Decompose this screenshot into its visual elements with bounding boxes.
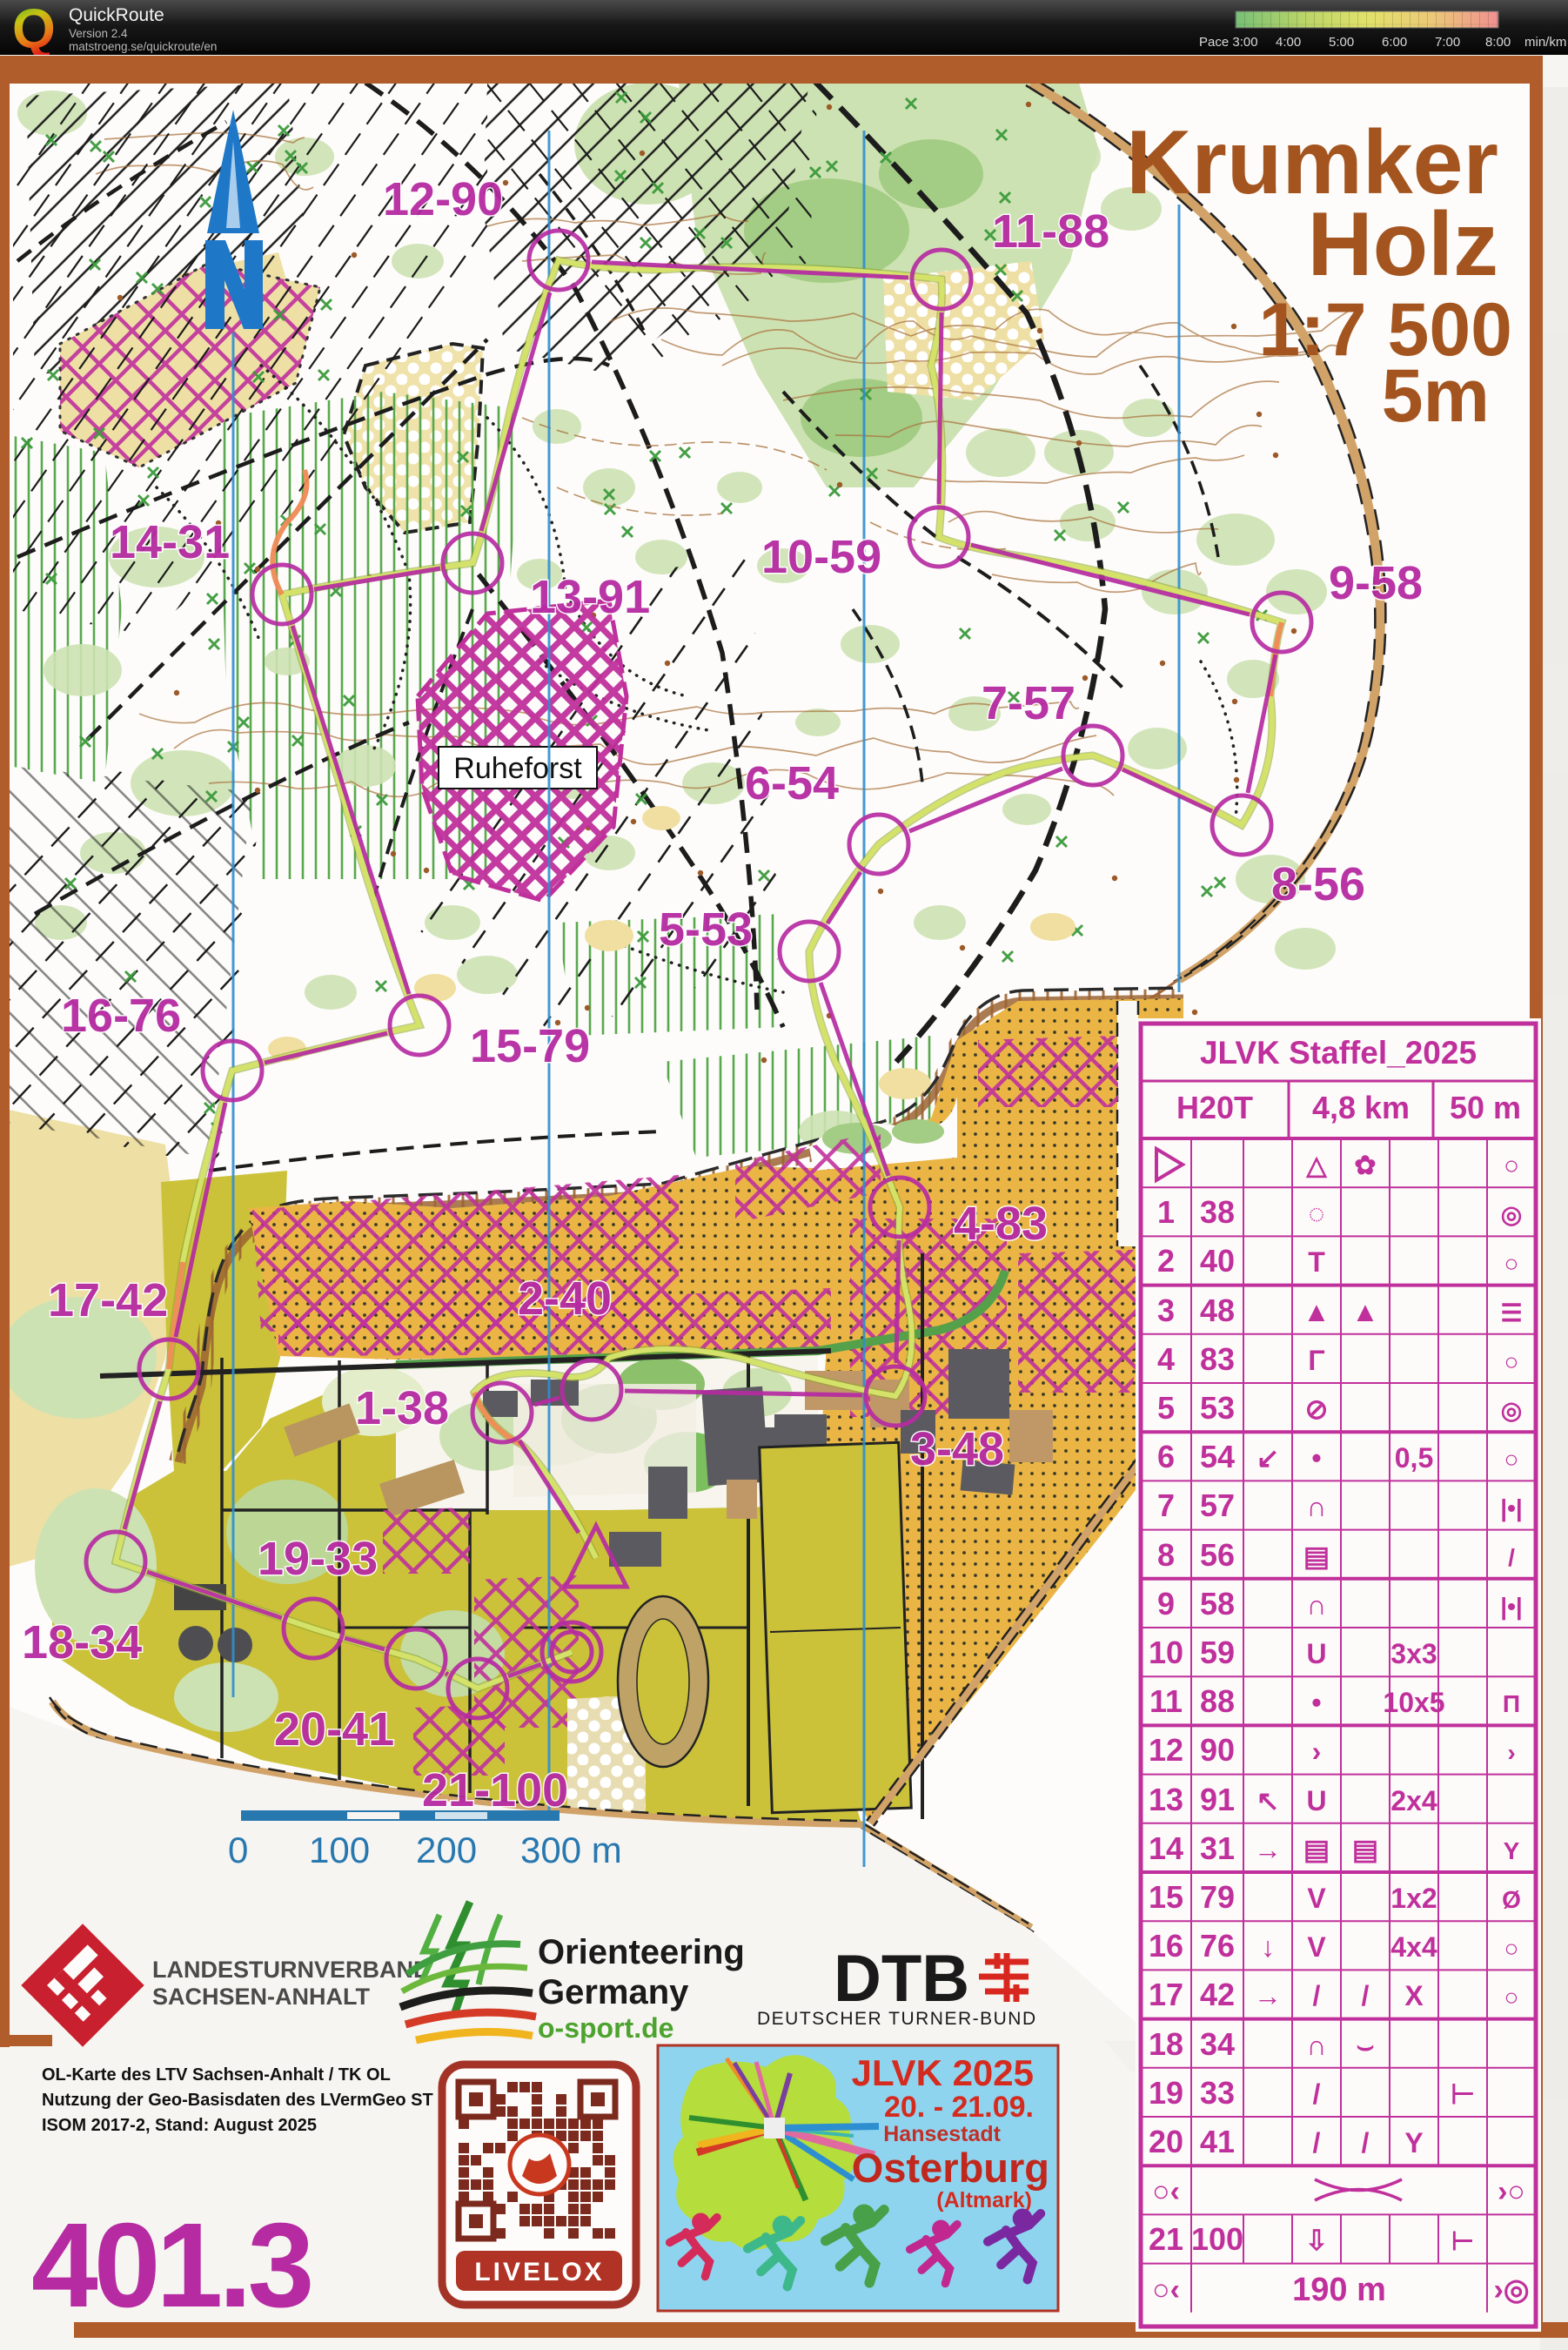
svg-text:Version 2.4: Version 2.4 xyxy=(69,27,128,40)
svg-text:↙: ↙ xyxy=(1256,1442,1280,1474)
svg-text:54: 54 xyxy=(1200,1439,1235,1474)
svg-text:41: 41 xyxy=(1200,2124,1235,2159)
svg-text:100: 100 xyxy=(1191,2221,1243,2257)
svg-text:▤: ▤ xyxy=(1352,1834,1378,1865)
svg-text:14: 14 xyxy=(1149,1830,1183,1866)
svg-text:○: ○ xyxy=(1504,1935,1519,1962)
svg-text:LIVELOX: LIVELOX xyxy=(474,2258,604,2286)
svg-text:91: 91 xyxy=(1200,1782,1235,1817)
svg-text:⊘: ⊘ xyxy=(1305,1393,1329,1425)
svg-text:Hansestadt: Hansestadt xyxy=(883,2122,1001,2146)
svg-text:Π: Π xyxy=(1503,1690,1520,1717)
svg-text:◎: ◎ xyxy=(1501,1397,1522,1424)
svg-text:ISOM 2017-2, Stand: August 202: ISOM 2017-2, Stand: August 2025 xyxy=(42,2116,317,2135)
svg-text:Q: Q xyxy=(12,0,56,60)
svg-text:17: 17 xyxy=(1149,1977,1183,2012)
svg-text:88: 88 xyxy=(1200,1683,1235,1719)
svg-text:›: › xyxy=(1312,1736,1322,1767)
svg-text:⊢: ⊢ xyxy=(1451,2078,1475,2110)
svg-text:/: / xyxy=(1362,1980,1370,2011)
svg-text:→: → xyxy=(1254,1980,1282,2011)
svg-text:○: ○ xyxy=(1504,1151,1519,1180)
svg-text:min/km: min/km xyxy=(1524,35,1566,50)
svg-text:U: U xyxy=(1306,1638,1326,1669)
svg-text:13-91: 13-91 xyxy=(530,571,650,623)
svg-text:/: / xyxy=(1313,1980,1321,2011)
svg-text:6: 6 xyxy=(1157,1439,1175,1474)
svg-text:31: 31 xyxy=(1200,1830,1235,1866)
svg-text:6-54: 6-54 xyxy=(745,757,839,809)
svg-text:1: 1 xyxy=(1157,1194,1175,1230)
svg-text:2: 2 xyxy=(1157,1243,1175,1279)
svg-text:Orienteering: Orienteering xyxy=(538,1933,745,1971)
svg-text:⌣: ⌣ xyxy=(1356,2030,1374,2061)
svg-text:○: ○ xyxy=(1504,1348,1519,1375)
svg-text:10: 10 xyxy=(1149,1635,1183,1670)
svg-text:8: 8 xyxy=(1157,1537,1175,1573)
svg-text:›○: ›○ xyxy=(1498,2175,1525,2208)
svg-text:JLVK Staffel_2025: JLVK Staffel_2025 xyxy=(1200,1035,1477,1071)
svg-text:9-58: 9-58 xyxy=(1329,557,1423,609)
svg-text:V: V xyxy=(1307,1883,1326,1914)
svg-text:4,8 km: 4,8 km xyxy=(1312,1090,1410,1125)
svg-text:12-90: 12-90 xyxy=(383,173,503,225)
svg-text:Pace 3:00: Pace 3:00 xyxy=(1199,35,1258,50)
svg-text:X: X xyxy=(1404,1980,1424,2011)
svg-text:15: 15 xyxy=(1149,1879,1183,1915)
svg-text:Γ: Γ xyxy=(1308,1345,1324,1376)
svg-text:•: • xyxy=(1311,1442,1321,1474)
svg-text:1x2: 1x2 xyxy=(1390,1883,1437,1914)
svg-text:→: → xyxy=(1254,1834,1282,1865)
svg-text:10-59: 10-59 xyxy=(761,531,881,583)
svg-text:8-56: 8-56 xyxy=(1271,858,1365,910)
svg-text:90: 90 xyxy=(1200,1732,1235,1768)
svg-text:|•|: |•| xyxy=(1500,1494,1522,1521)
svg-text:Y: Y xyxy=(1504,1837,1520,1864)
svg-text:○‹: ○‹ xyxy=(1152,2175,1180,2208)
svg-text:✿: ✿ xyxy=(1354,1151,1376,1180)
svg-text:OL-Karte des LTV Sachsen-Anhal: OL-Karte des LTV Sachsen-Anhalt / TK OL xyxy=(42,2065,391,2085)
svg-text:190 m: 190 m xyxy=(1292,2272,1386,2308)
svg-text:10x5: 10x5 xyxy=(1383,1687,1444,1718)
svg-text:18-34: 18-34 xyxy=(22,1616,142,1668)
svg-text:/: / xyxy=(1313,2127,1321,2159)
svg-text:83: 83 xyxy=(1200,1341,1235,1377)
svg-text:▤: ▤ xyxy=(1303,1834,1330,1865)
svg-text:T: T xyxy=(1308,1246,1325,1278)
svg-text:matstroeng.se/quickroute/en: matstroeng.se/quickroute/en xyxy=(69,40,217,53)
svg-text:▲: ▲ xyxy=(1303,1296,1330,1327)
svg-text:◌: ◌ xyxy=(1308,1198,1324,1229)
svg-text:57: 57 xyxy=(1200,1487,1235,1523)
svg-text:/: / xyxy=(1362,2127,1370,2159)
svg-text:○‹: ○‹ xyxy=(1152,2273,1180,2306)
svg-text:5: 5 xyxy=(1157,1390,1175,1426)
svg-text:V: V xyxy=(1307,1931,1326,1963)
svg-text:|•|: |•| xyxy=(1500,1593,1522,1620)
svg-text:SACHSEN-ANHALT: SACHSEN-ANHALT xyxy=(152,1984,370,2010)
svg-text:o-sport.de: o-sport.de xyxy=(538,2012,673,2044)
svg-text:↖: ↖ xyxy=(1256,1785,1280,1816)
svg-text:∩: ∩ xyxy=(1306,2030,1326,2061)
svg-text:4x4: 4x4 xyxy=(1390,1931,1437,1963)
svg-text:⇩: ⇩ xyxy=(1305,2225,1329,2256)
svg-text:▲: ▲ xyxy=(1351,1296,1379,1327)
svg-text:↓: ↓ xyxy=(1261,1931,1275,1963)
svg-text:Holz: Holz xyxy=(1307,194,1498,295)
svg-text:∩: ∩ xyxy=(1306,1491,1326,1522)
svg-text:76: 76 xyxy=(1200,1928,1235,1964)
svg-text:20. - 21.09.: 20. - 21.09. xyxy=(884,2091,1034,2124)
svg-text:DEUTSCHER TURNER-BUND: DEUTSCHER TURNER-BUND xyxy=(757,2009,1037,2029)
svg-text:3-48: 3-48 xyxy=(910,1423,1004,1475)
svg-text:11: 11 xyxy=(1149,1683,1183,1719)
svg-text:◎: ◎ xyxy=(1501,1201,1522,1228)
svg-text:›: › xyxy=(1507,1739,1515,1766)
svg-text:8:00: 8:00 xyxy=(1485,35,1511,50)
svg-text:13: 13 xyxy=(1149,1782,1183,1817)
svg-text:4:00: 4:00 xyxy=(1276,35,1301,50)
svg-text:4-83: 4-83 xyxy=(954,1198,1048,1250)
svg-text:401.3: 401.3 xyxy=(31,2199,311,2333)
svg-text:Germany: Germany xyxy=(538,1973,689,2011)
svg-text:56: 56 xyxy=(1200,1537,1235,1573)
svg-text:LANDESTURNVERBAND: LANDESTURNVERBAND xyxy=(152,1957,431,1983)
svg-text:16: 16 xyxy=(1149,1928,1183,1964)
svg-text:0,5: 0,5 xyxy=(1395,1442,1433,1474)
svg-text:•: • xyxy=(1311,1687,1321,1718)
svg-text:53: 53 xyxy=(1200,1390,1235,1426)
svg-text:12: 12 xyxy=(1149,1732,1183,1768)
svg-text:50 m: 50 m xyxy=(1450,1090,1521,1125)
svg-text:79: 79 xyxy=(1200,1879,1235,1915)
svg-text:20-41: 20-41 xyxy=(274,1703,394,1756)
svg-text:Ruheforst: Ruheforst xyxy=(453,752,582,785)
svg-text:7-57: 7-57 xyxy=(982,677,1075,729)
svg-text:100: 100 xyxy=(309,1830,370,1870)
svg-text:34: 34 xyxy=(1200,2026,1235,2062)
svg-text:19-33: 19-33 xyxy=(258,1533,378,1585)
svg-text:3x3: 3x3 xyxy=(1390,1638,1437,1669)
svg-text:○: ○ xyxy=(1504,1984,1519,2011)
svg-text:6:00: 6:00 xyxy=(1382,35,1407,50)
svg-text:H20T: H20T xyxy=(1176,1090,1253,1125)
svg-text:0: 0 xyxy=(228,1830,248,1870)
svg-text:21: 21 xyxy=(1149,2221,1183,2257)
svg-text:Ø: Ø xyxy=(1502,1886,1521,1913)
svg-text:(Altmark): (Altmark) xyxy=(936,2188,1032,2212)
svg-text:11-88: 11-88 xyxy=(992,205,1109,258)
svg-text:Nutzung der Geo-Basisdaten des: Nutzung der Geo-Basisdaten des LVermGeo … xyxy=(42,2091,433,2110)
svg-text:48: 48 xyxy=(1200,1292,1235,1328)
svg-text:17-42: 17-42 xyxy=(48,1274,168,1326)
svg-text:›◎: ›◎ xyxy=(1494,2273,1530,2306)
svg-text:U: U xyxy=(1306,1785,1326,1816)
svg-text:59: 59 xyxy=(1200,1635,1235,1670)
svg-text:19: 19 xyxy=(1149,2075,1183,2111)
svg-text:42: 42 xyxy=(1200,1977,1235,2012)
svg-text:5m: 5m xyxy=(1382,354,1490,438)
svg-text:3: 3 xyxy=(1157,1292,1175,1328)
svg-text:Osterburg: Osterburg xyxy=(852,2145,1049,2191)
svg-text:9: 9 xyxy=(1157,1586,1175,1621)
svg-text:300 m: 300 m xyxy=(520,1830,622,1870)
svg-text:18: 18 xyxy=(1149,2026,1183,2062)
svg-text:QuickRoute: QuickRoute xyxy=(69,5,164,25)
svg-text:○: ○ xyxy=(1504,1250,1519,1277)
svg-text:5:00: 5:00 xyxy=(1329,35,1354,50)
svg-text:Y: Y xyxy=(1404,2127,1423,2159)
svg-text:△: △ xyxy=(1305,1151,1327,1180)
svg-text:20: 20 xyxy=(1149,2124,1183,2159)
svg-text:4: 4 xyxy=(1157,1341,1175,1377)
svg-text:2-40: 2-40 xyxy=(518,1272,612,1325)
svg-text:5-53: 5-53 xyxy=(659,903,753,956)
svg-text:1-38: 1-38 xyxy=(355,1382,449,1434)
svg-text:/: / xyxy=(1313,2078,1321,2110)
svg-text:14-31: 14-31 xyxy=(110,516,230,568)
svg-text:☰: ☰ xyxy=(1500,1299,1522,1326)
svg-text:∩: ∩ xyxy=(1306,1589,1326,1621)
svg-text:DTB: DTB xyxy=(834,1942,969,2016)
svg-text:58: 58 xyxy=(1200,1586,1235,1621)
svg-text:7:00: 7:00 xyxy=(1435,35,1460,50)
svg-text:200: 200 xyxy=(416,1830,477,1870)
svg-text:JLVK 2025: JLVK 2025 xyxy=(852,2052,1034,2093)
svg-text:33: 33 xyxy=(1200,2075,1235,2111)
svg-text:▤: ▤ xyxy=(1303,1541,1330,1572)
svg-text:15-79: 15-79 xyxy=(470,1020,590,1072)
svg-text:⊢: ⊢ xyxy=(1451,2227,1474,2256)
svg-text:7: 7 xyxy=(1157,1487,1175,1523)
svg-text:○: ○ xyxy=(1504,1446,1519,1473)
svg-text:/: / xyxy=(1508,1544,1515,1571)
svg-text:16-76: 16-76 xyxy=(61,990,181,1042)
svg-text:2x4: 2x4 xyxy=(1390,1785,1437,1816)
svg-text:21-100: 21-100 xyxy=(422,1764,568,1816)
svg-text:38: 38 xyxy=(1200,1194,1235,1230)
svg-text:40: 40 xyxy=(1200,1243,1235,1279)
